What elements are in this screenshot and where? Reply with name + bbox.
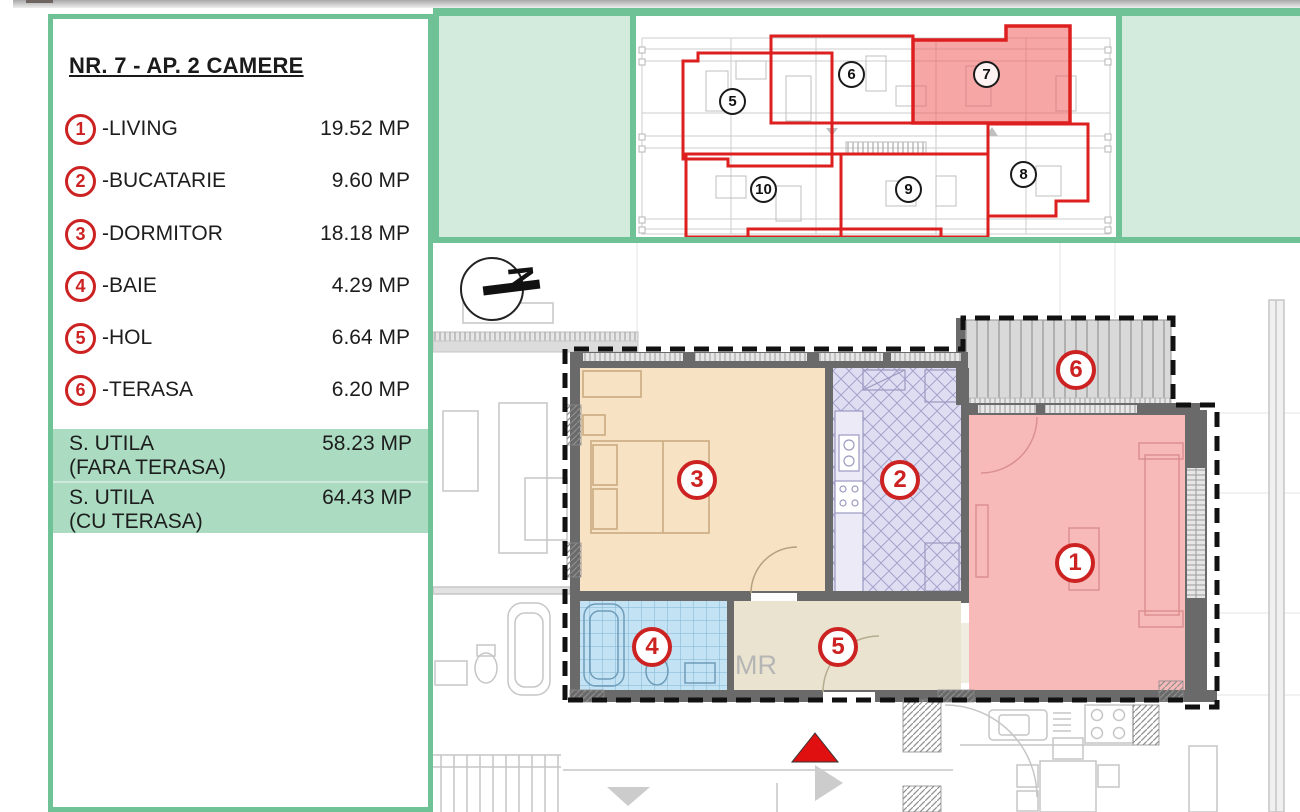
unit-badge-9[interactable]: 9 xyxy=(895,176,922,203)
room-number-badge: 1 xyxy=(65,114,96,145)
summary-sublabel: (FARA TERASA) xyxy=(69,456,412,480)
plan-room-badge-3: 3 xyxy=(677,460,717,500)
room-number-badge: 5 xyxy=(65,323,96,354)
meter-label: MR xyxy=(735,650,777,681)
plan-room-badge-2: 2 xyxy=(880,460,920,500)
unit-badge-6[interactable]: 6 xyxy=(838,61,865,88)
plan-room-badge-5: 5 xyxy=(818,627,858,667)
room-number-badge: 4 xyxy=(65,271,96,302)
legend-row-terasa: 6 -TERASA 6.20 MP xyxy=(65,372,416,408)
plan-room-badge-1: 1 xyxy=(1055,543,1095,583)
plan-room-badge-6: 6 xyxy=(1056,350,1096,390)
room-area: 6.64 MP xyxy=(332,326,410,350)
room-number-badge: 6 xyxy=(65,375,96,406)
room-area: 6.20 MP xyxy=(332,378,410,402)
unit-badge-10[interactable]: 10 xyxy=(750,176,777,203)
room-area: 19.52 MP xyxy=(320,117,410,141)
summary-area: 64.43 MP xyxy=(322,486,412,510)
room-label: -TERASA xyxy=(102,378,193,402)
unit-badge-5[interactable]: 5 xyxy=(719,88,746,115)
summary-sublabel: (CU TERASA) xyxy=(69,510,412,534)
room-area: 4.29 MP xyxy=(332,274,410,298)
legend-panel: NR. 7 - AP. 2 CAMERE 1 -LIVING 19.52 MP … xyxy=(48,14,433,812)
room-number-badge: 3 xyxy=(65,219,96,250)
room-label: -LIVING xyxy=(102,117,178,141)
legend-row-hol: 5 -HOL 6.64 MP xyxy=(65,320,416,356)
room-area: 18.18 MP xyxy=(320,222,410,246)
apartment-plan-drawing xyxy=(433,243,1300,812)
unit-badge-7[interactable]: 7 xyxy=(973,61,1000,88)
summary-area: 58.23 MP xyxy=(322,432,412,456)
plan-room-badge-4: 4 xyxy=(632,627,672,667)
overview-drawing xyxy=(636,16,1116,237)
room-label: -DORMITOR xyxy=(102,222,223,246)
legend-row-bucatarie: 2 -BUCATARIE 9.60 MP xyxy=(65,163,416,199)
compass-north-letter: N xyxy=(499,264,543,294)
building-overview-band: 5 6 7 8 9 10 xyxy=(433,8,1300,245)
room-area: 9.60 MP xyxy=(332,169,410,193)
scrollbar-thumb[interactable] xyxy=(26,0,53,3)
legend-row-baie: 4 -BAIE 4.29 MP xyxy=(65,268,416,304)
floor-plan-page: { "legend": { "title": "NR. 7 - AP. 2 CA… xyxy=(0,0,1300,812)
apartment-plan xyxy=(433,243,1300,812)
legend-row-dormitor: 3 -DORMITOR 18.18 MP xyxy=(65,216,416,252)
room-number-badge: 2 xyxy=(65,166,96,197)
unit-badge-8[interactable]: 8 xyxy=(1010,161,1037,188)
legend-row-living: 1 -LIVING 19.52 MP xyxy=(65,111,416,147)
entrance-arrow xyxy=(792,733,838,762)
legend-title: NR. 7 - AP. 2 CAMERE xyxy=(69,53,304,79)
summary-row-cu-terasa: S. UTILA (CU TERASA) 64.43 MP xyxy=(53,481,428,533)
room-label: -BUCATARIE xyxy=(102,169,226,193)
room-label: -BAIE xyxy=(102,274,157,298)
building-overview-plan: 5 6 7 8 9 10 xyxy=(636,16,1116,237)
room-label: -HOL xyxy=(102,326,152,350)
horizontal-scrollbar[interactable] xyxy=(13,0,1300,8)
summary-row-fara-terasa: S. UTILA (FARA TERASA) 58.23 MP xyxy=(53,429,428,481)
